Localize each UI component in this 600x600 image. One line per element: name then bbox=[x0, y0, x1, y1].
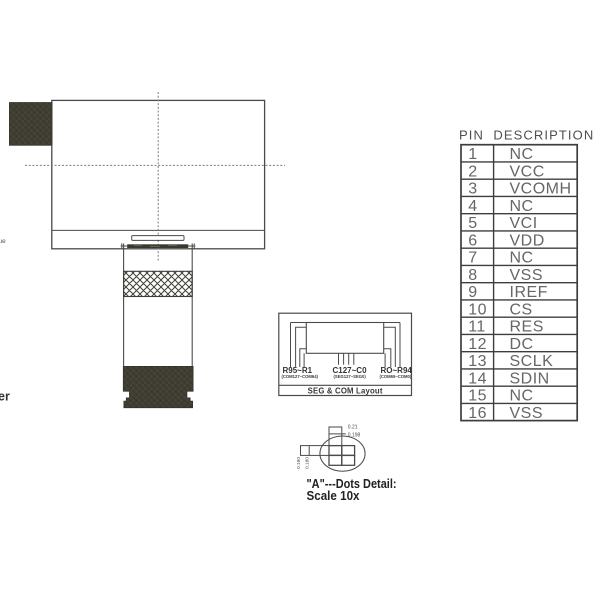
svg-text:11: 11 bbox=[468, 319, 486, 336]
svg-text:SEG & COM Layout: SEG & COM Layout bbox=[308, 385, 383, 395]
svg-text:3: 3 bbox=[468, 181, 477, 198]
svg-text:VCC: VCC bbox=[510, 163, 545, 180]
svg-text:12: 12 bbox=[468, 336, 487, 353]
svg-text:CS: CS bbox=[510, 301, 533, 318]
svg-text:10: 10 bbox=[468, 301, 487, 318]
svg-text:8: 8 bbox=[468, 267, 477, 284]
svg-text:15: 15 bbox=[468, 388, 487, 405]
svg-text:VCOMH: VCOMH bbox=[510, 181, 572, 198]
svg-text:RES: RES bbox=[510, 319, 544, 336]
svg-text:(COM65~COM0): (COM65~COM0) bbox=[380, 374, 412, 379]
svg-text:16: 16 bbox=[468, 405, 487, 422]
svg-text:0.190: 0.190 bbox=[296, 457, 302, 469]
svg-text:2: 2 bbox=[468, 163, 477, 180]
svg-text:13: 13 bbox=[468, 353, 487, 370]
svg-text:7: 7 bbox=[468, 250, 477, 267]
svg-text:VSS: VSS bbox=[510, 267, 544, 284]
svg-text:9: 9 bbox=[468, 284, 477, 301]
svg-text:0.180: 0.180 bbox=[304, 457, 310, 469]
svg-text:IREF: IREF bbox=[510, 284, 548, 301]
svg-text:NC: NC bbox=[510, 146, 534, 163]
svg-text:VDD: VDD bbox=[510, 232, 545, 249]
svg-text:0.21: 0.21 bbox=[348, 425, 358, 431]
svg-text:Scale 10x: Scale 10x bbox=[307, 488, 361, 503]
svg-text:VSS: VSS bbox=[510, 405, 544, 422]
svg-text:14: 14 bbox=[468, 370, 487, 387]
svg-text:VCI: VCI bbox=[510, 215, 538, 232]
svg-text:DC: DC bbox=[510, 336, 534, 353]
svg-text:PIN DESCRIPTION: PIN DESCRIPTION bbox=[459, 128, 594, 143]
svg-text:NC: NC bbox=[510, 198, 534, 215]
svg-text:NC: NC bbox=[510, 250, 534, 267]
svg-text:6: 6 bbox=[468, 232, 477, 249]
svg-text:5: 5 bbox=[468, 215, 477, 232]
svg-text:NC: NC bbox=[510, 388, 534, 405]
svg-text:(SEG127~SEG0): (SEG127~SEG0) bbox=[334, 374, 367, 379]
svg-text:SDIN: SDIN bbox=[510, 370, 550, 387]
svg-text:0.198: 0.198 bbox=[348, 432, 361, 438]
svg-text:4: 4 bbox=[468, 198, 477, 215]
svg-text:SCLK: SCLK bbox=[510, 353, 554, 370]
svg-text:(COM127~COM64): (COM127~COM64) bbox=[282, 374, 319, 379]
svg-text:1: 1 bbox=[468, 146, 477, 163]
svg-text:er: er bbox=[0, 390, 10, 404]
svg-text:ue: ue bbox=[0, 238, 6, 245]
